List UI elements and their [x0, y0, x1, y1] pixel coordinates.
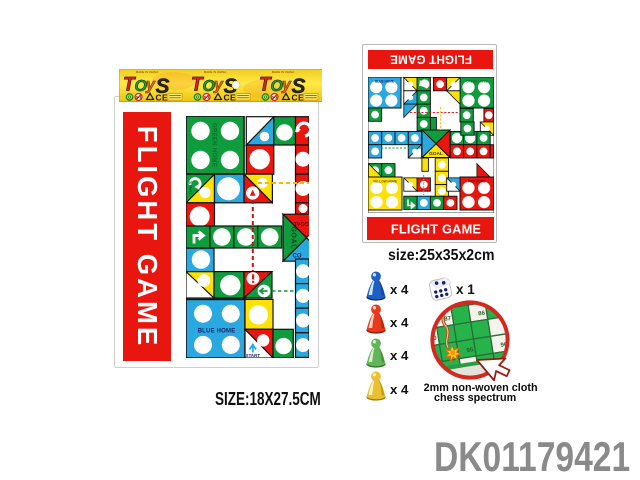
svg-text:y: y — [145, 77, 156, 94]
svg-text:GOAL: GOAL — [292, 220, 309, 226]
svg-text:y: y — [280, 77, 291, 94]
svg-text:BLUE HOME: BLUE HOME — [197, 329, 235, 335]
svg-text:GREEN HOME: GREEN HOME — [466, 79, 488, 83]
svg-text:BLUE HOME: BLUE HOME — [375, 79, 394, 83]
svg-text:MADE IN CHINA: MADE IN CHINA — [271, 70, 294, 74]
svg-text:MADE IN CHINA: MADE IN CHINA — [203, 70, 226, 74]
svg-text:START: START — [245, 353, 260, 358]
svg-text:GOAL: GOAL — [289, 226, 298, 249]
svg-text:YELLOW HOME: YELLOW HOME — [373, 180, 397, 184]
svg-text:y: y — [213, 77, 224, 94]
svg-text:START: START — [188, 181, 193, 195]
svg-text:CE: CE — [291, 93, 304, 102]
svg-text:CE: CE — [223, 93, 236, 102]
svg-text:GOAL: GOAL — [429, 151, 443, 157]
svg-text:RED HOME: RED HOME — [468, 180, 485, 184]
svg-text:GREEN HOME: GREEN HOME — [210, 123, 216, 167]
svg-text:MADE IN CHINA: MADE IN CHINA — [135, 70, 158, 74]
svg-text:1: 1 — [300, 341, 305, 350]
svg-text:CE: CE — [155, 93, 168, 102]
